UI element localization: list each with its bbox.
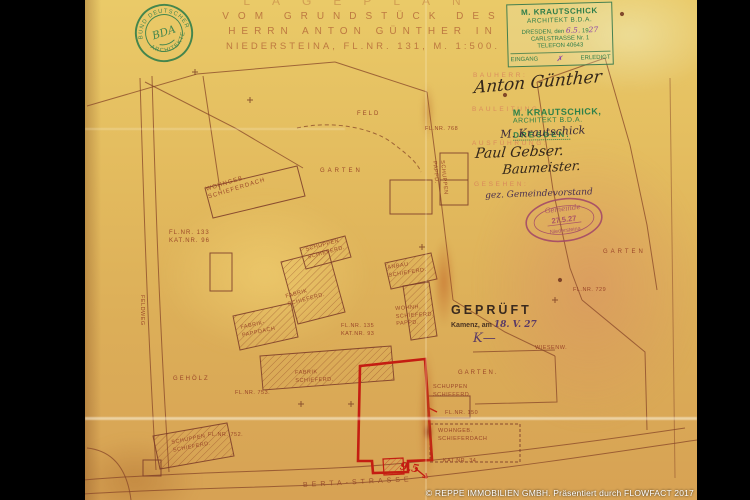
plan-label: WIESENW. — [535, 345, 567, 353]
plan-label: WOHNGEB. SCHIEFERDACH — [205, 169, 267, 202]
plan-label: GARTEN — [320, 167, 363, 175]
plan-label: WOHNH. SCHIEFERD. PAPPD. — [395, 303, 435, 329]
crease-horizontal — [85, 417, 697, 420]
stamp-footer-right: ERLEDIGT — [581, 54, 611, 61]
seal-place-text: Niedersteina — [550, 226, 582, 236]
handwritten-date: 6.5. — [566, 25, 581, 34]
paper-dark-edge — [85, 0, 101, 500]
plan-label: SCHUPPEN SCHIEFERD. — [171, 433, 212, 455]
title-line-1: LAGEPLAN — [205, 0, 521, 8]
plan-label: GARTEN — [603, 248, 646, 256]
geprueft-stamp: GEPRÜFT Kamenz, am 18. V. 27 K— — [451, 303, 591, 346]
plan-label: FL.NR. 133 KAT.NR. 96 — [169, 229, 210, 246]
plan-label: GEHÖLZ — [173, 375, 210, 383]
plan-label: FL.NR. 729 — [573, 287, 606, 295]
plan-title: LAGEPLAN VOM GRUNDSTÜCK DES HERRN ANTON … — [205, 0, 521, 52]
plan-label: SCHUPPEN SCHIEFERD. — [433, 384, 471, 399]
plan-label: SCHUPPEN PAPPD. — [430, 160, 449, 196]
stamp-role: ARCHITEKT B.D.A. — [510, 16, 610, 26]
stamp-footer: EINGANG ✗ ERLEDIGT — [510, 51, 610, 65]
plan-label: FL.NR. 150 — [445, 410, 478, 418]
street-name-label: BERTA-STRASSE — [303, 476, 413, 489]
stamp-city: DRESDEN, den — [522, 29, 565, 36]
plan-label: FL.NR. 768 — [425, 126, 458, 134]
geprueft-initials: K— — [473, 331, 591, 346]
gemeinde-oval-seal: Gemeinde 27.5.27 Niedersteina — [520, 191, 607, 249]
geprueft-title: GEPRÜFT — [451, 303, 591, 317]
plan-label: FELD — [357, 110, 380, 118]
architect-office-stamp: M. KRAUTSCHICK ARCHITEKT B.D.A. DRESDEN,… — [506, 2, 614, 68]
crease-vertical — [425, 0, 427, 500]
plan-label: WOHNGEB. SCHIEFERDACH — [438, 428, 487, 443]
plan-label: FL.NR. 752. — [208, 432, 243, 440]
handwritten-year: 27 — [589, 25, 599, 34]
plan-label: FABRIK SCHIEFERD. — [295, 369, 334, 386]
geprueft-date-hand: 18. V. 27 — [494, 320, 537, 330]
title-line-4: NIEDERSTEINA, FL.NR. 131, M. 1:500. — [205, 41, 521, 52]
watermark-text: © REPPE IMMOBILIEN GMBH. Präsentiert dur… — [426, 488, 694, 498]
gesehen-caption: GESEHEN: — [474, 181, 528, 188]
plan-label: ANBAU SCHIEFERD. — [387, 259, 427, 280]
geprueft-place-line: Kamenz, am 18. V. 27 — [451, 320, 591, 330]
title-line-2: VOM GRUNDSTÜCK DES — [205, 11, 521, 22]
plan-label: KAT.NR. 34. — [443, 458, 478, 466]
stamp-footer-left: EINGANG — [511, 56, 539, 63]
letterbox-left — [0, 0, 85, 500]
crease-horizontal — [85, 128, 345, 130]
title-line-3: HERRN ANTON GÜNTHER IN — [205, 26, 521, 37]
bda-round-seal: BUND DEUTSCHER ARCHITEKTEN BDA — [125, 0, 203, 72]
geprueft-place: Kamenz, am — [451, 322, 492, 329]
plan-label: FELDWEG — [137, 295, 145, 326]
letterbox-right — [697, 0, 750, 500]
scanned-site-plan-document: LAGEPLAN VOM GRUNDSTÜCK DES HERRN ANTON … — [85, 0, 697, 500]
handwritten-check: ✗ — [556, 54, 563, 63]
plan-label: FL.NR. 753. — [235, 390, 270, 398]
stamp-phone: TELEFON 40643 — [510, 42, 610, 51]
screenshot-root: LAGEPLAN VOM GRUNDSTÜCK DES HERRN ANTON … — [0, 0, 750, 500]
seal-monogram: BDA — [149, 22, 177, 42]
red-dimension-note: 9,5 — [399, 459, 420, 475]
ausfuehrung-signature: Paul Gebser. — [474, 143, 564, 162]
plan-label: GARTEN. — [458, 369, 499, 377]
plan-label: FL.NR. 135 KAT.NR. 93 — [341, 323, 374, 338]
